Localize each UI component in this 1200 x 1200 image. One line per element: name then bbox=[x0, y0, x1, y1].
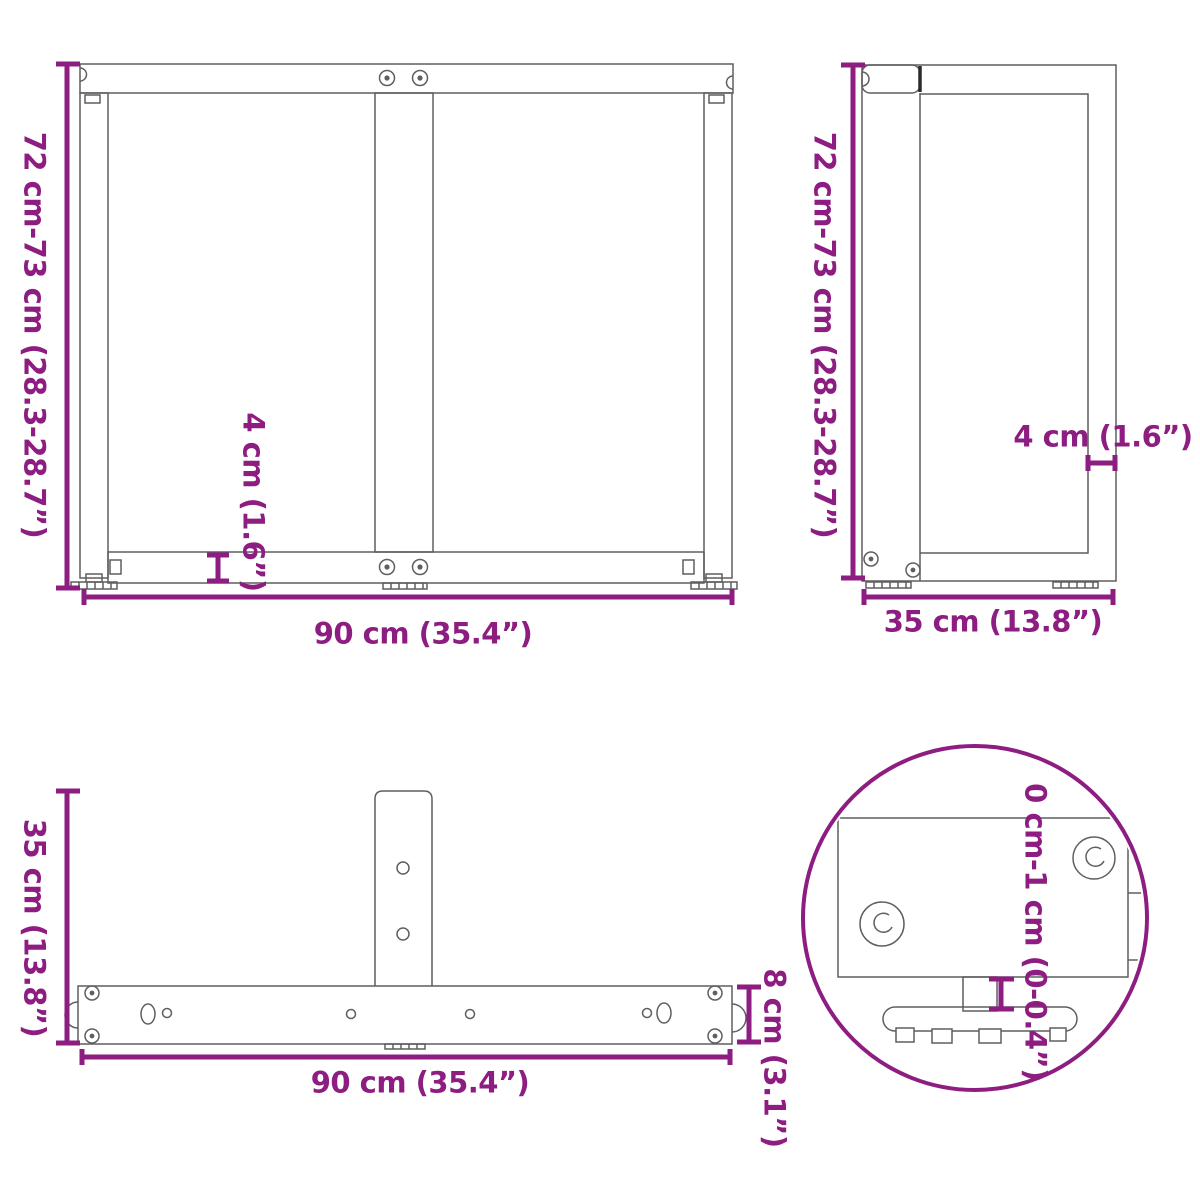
front-right-foot bbox=[691, 574, 737, 589]
front-serrated-strip bbox=[383, 583, 427, 589]
front-rail-height-dimension-label: 4 cm (1.6”) bbox=[239, 412, 268, 591]
front-center-bar bbox=[375, 93, 433, 552]
front-top-rail bbox=[80, 64, 733, 93]
dimension-diagram-canvas: 72 cm-73 cm (28.3-28.7”) 90 cm (35.4”) 4… bbox=[0, 0, 1200, 1200]
top-screw-markers bbox=[85, 986, 722, 1043]
front-height-dim-line bbox=[56, 64, 80, 588]
side-height-dimension-label: 72 cm-73 cm (28.3-28.7”) bbox=[810, 132, 839, 539]
front-dimension-lines bbox=[56, 64, 732, 605]
detail-view-drawing bbox=[803, 746, 1147, 1090]
side-top-bracket bbox=[862, 65, 920, 93]
top-serrated-strip bbox=[385, 1044, 425, 1049]
front-screw-markers bbox=[380, 71, 428, 575]
top-dimension-lines bbox=[56, 791, 761, 1065]
side-screw-markers bbox=[864, 552, 920, 577]
front-left-leg bbox=[80, 93, 108, 578]
front-height-dimension-label: 72 cm-73 cm (28.3-28.7”) bbox=[20, 132, 49, 539]
top-view-drawing bbox=[65, 791, 746, 1049]
side-width-dim-line bbox=[864, 589, 1113, 605]
top-horizontal-bar bbox=[78, 986, 732, 1044]
front-width-dim-line bbox=[84, 589, 732, 605]
detail-foot-adjustment-label: 0 cm-1 cm (0-0.4”) bbox=[1021, 783, 1050, 1081]
detail-screw-markers bbox=[860, 837, 1115, 946]
top-bar-width-dimension-label: 8 cm (3.1”) bbox=[760, 968, 789, 1147]
top-depth-dimension-label: 35 cm (13.8”) bbox=[20, 819, 49, 1038]
front-right-leg bbox=[704, 93, 732, 578]
front-rail-height-marker bbox=[207, 555, 229, 581]
side-dimension-lines bbox=[841, 65, 1115, 605]
side-width-dimension-label: 35 cm (13.8”) bbox=[884, 608, 1103, 637]
detail-magnifier-circle bbox=[803, 746, 1147, 1090]
side-inner-contour bbox=[920, 94, 1088, 553]
front-width-dimension-label: 90 cm (35.4”) bbox=[314, 620, 533, 649]
side-top-gap-dimension-label: 4 cm (1.6”) bbox=[1013, 423, 1192, 452]
side-gap-marker bbox=[1088, 455, 1115, 471]
detail-adjustment-marker bbox=[989, 979, 1014, 1009]
top-width-dim-line bbox=[82, 1049, 730, 1065]
side-view-drawing bbox=[862, 65, 1116, 588]
front-view-drawing bbox=[71, 64, 737, 589]
top-width-dimension-label: 90 cm (35.4”) bbox=[311, 1069, 530, 1098]
side-feet bbox=[866, 582, 1098, 588]
side-outer-contour bbox=[862, 65, 1116, 581]
detail-foot-stem bbox=[963, 977, 997, 1011]
top-holes bbox=[141, 1003, 671, 1024]
front-bottom-rail bbox=[108, 552, 704, 583]
top-upright-plate bbox=[375, 791, 432, 986]
top-depth-dim-line bbox=[56, 791, 80, 1043]
detail-leg-bottom bbox=[838, 818, 1128, 977]
